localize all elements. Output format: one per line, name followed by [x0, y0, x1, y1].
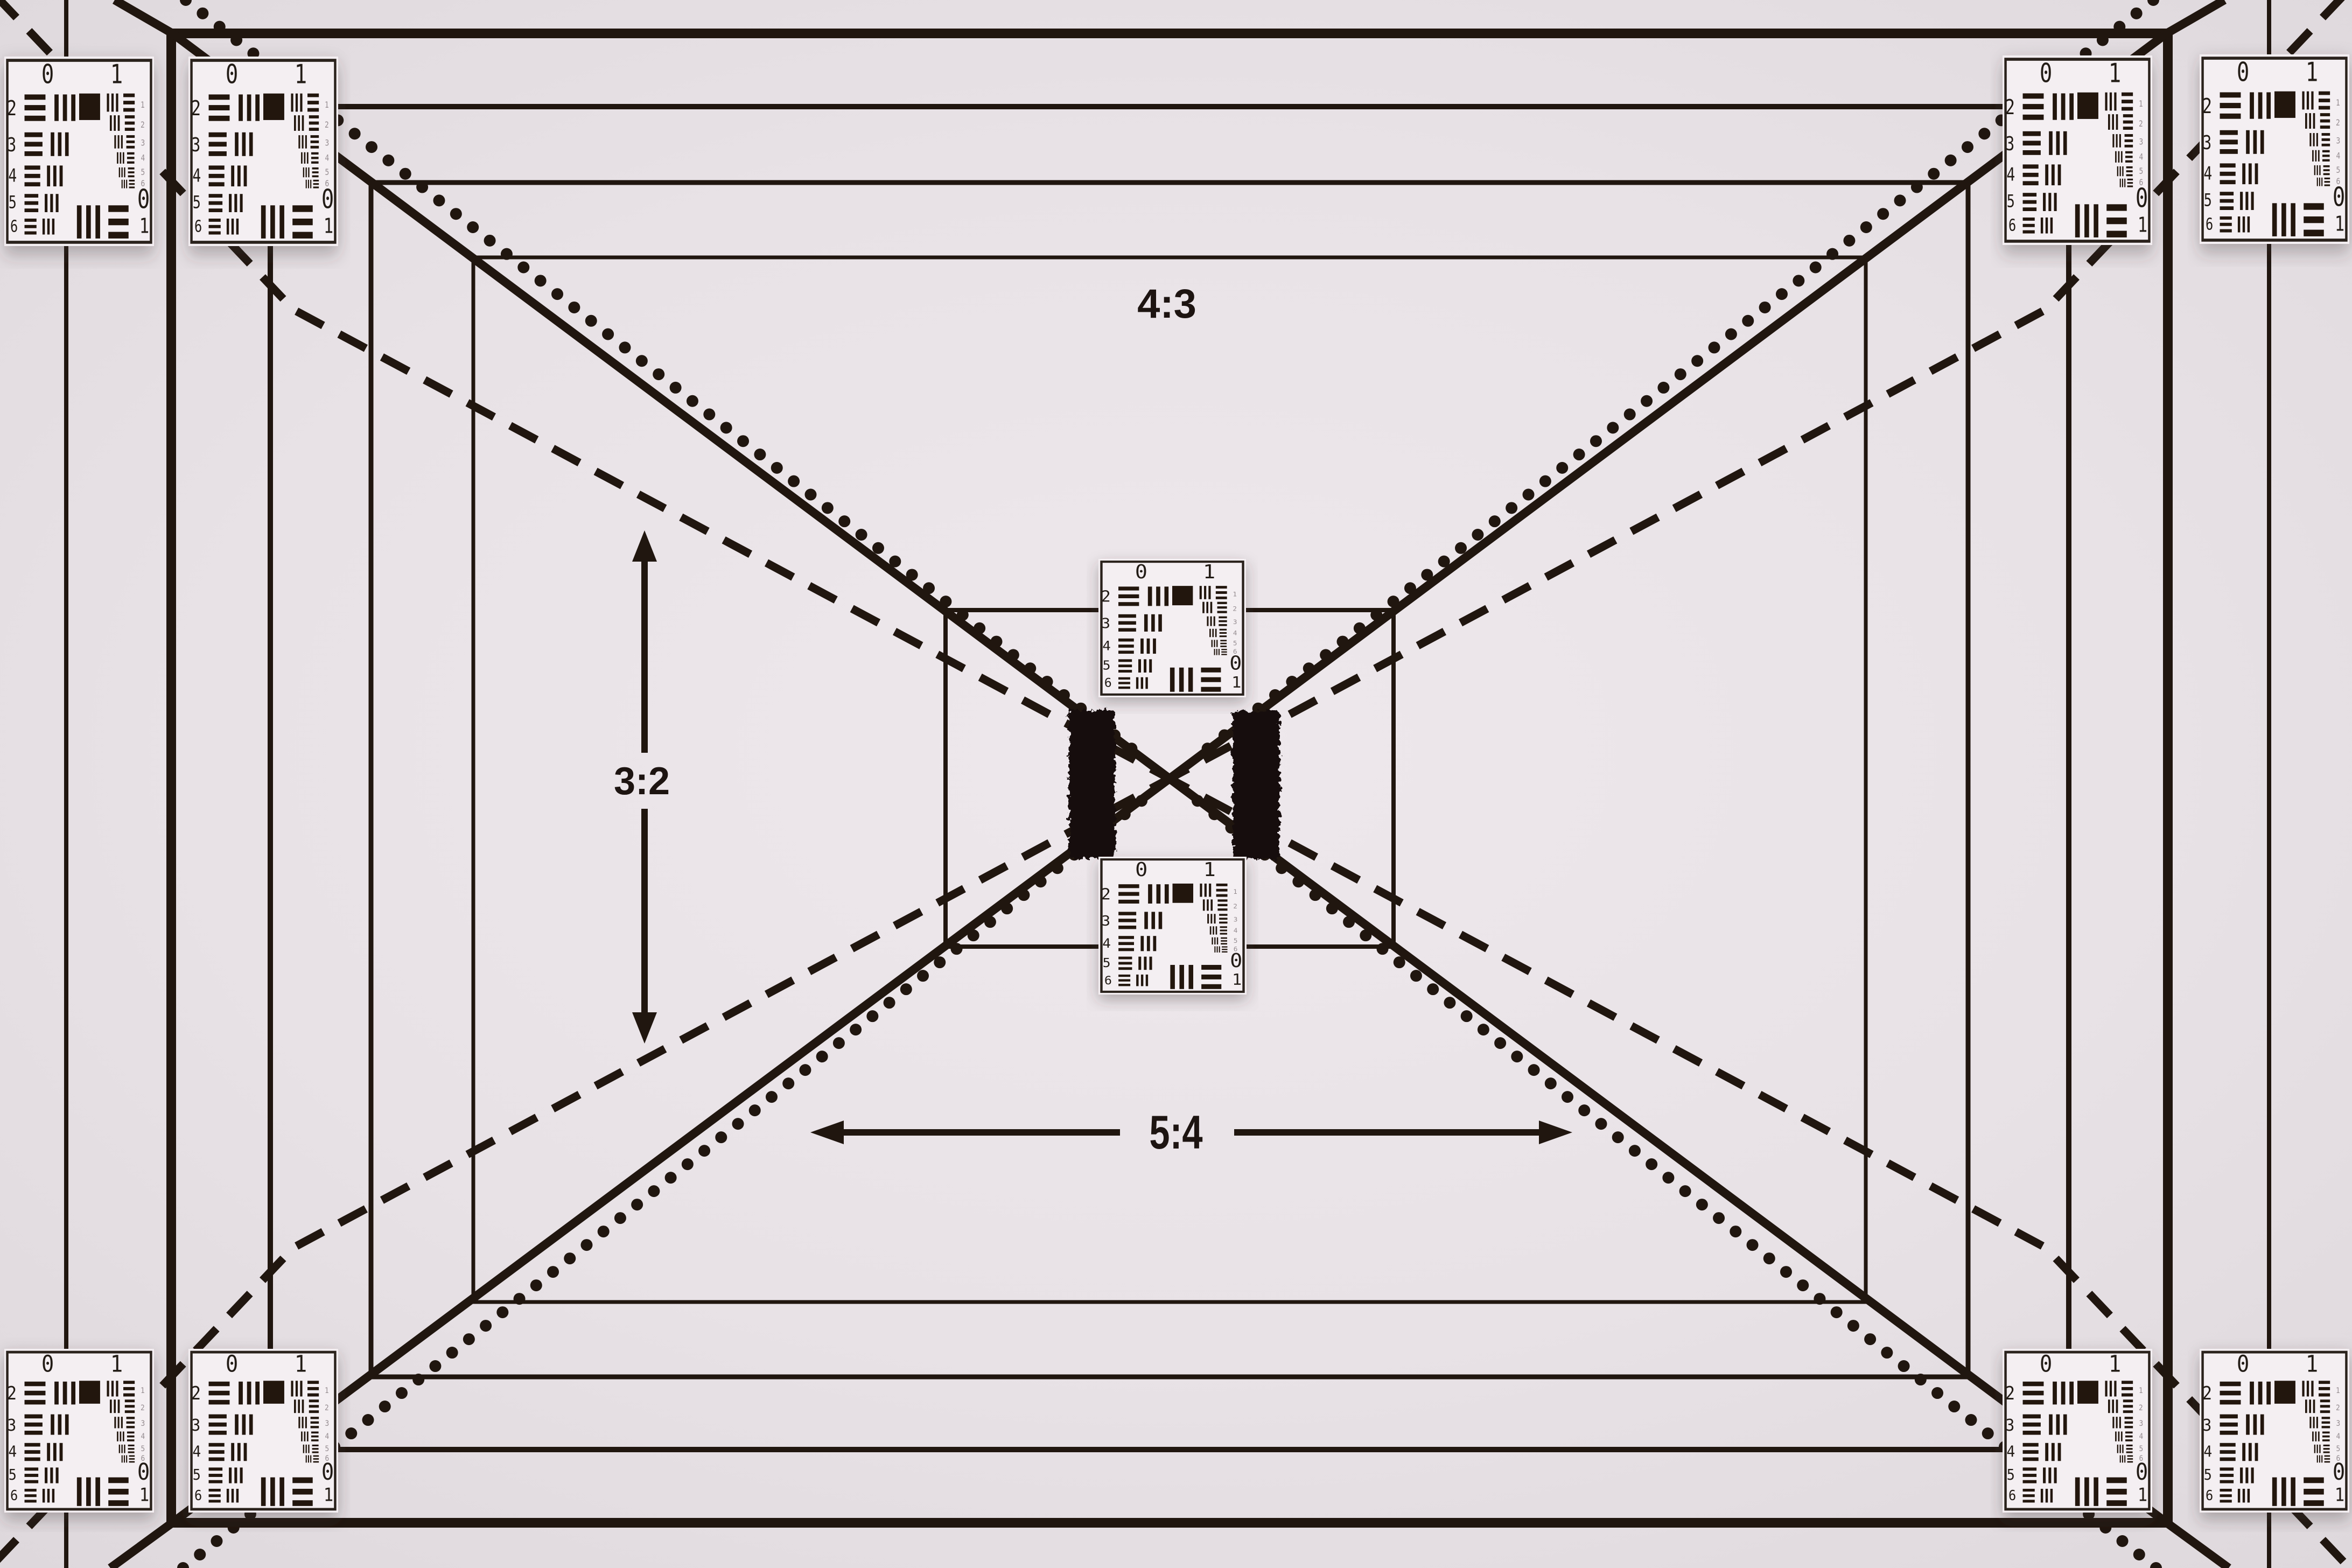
- usaf-instance: [2003, 55, 2152, 245]
- test-chart-scene: 012345612345601 4:33:25:4: [0, 0, 2352, 1568]
- test-chart-photo: 012345612345601 4:33:25:4: [0, 0, 2352, 1568]
- arrowhead-down-icon: [632, 1012, 657, 1044]
- arrowhead-up-icon: [632, 530, 657, 562]
- usaf-target-inner-bottom-right: [2003, 1349, 2152, 1513]
- usaf-instance: [4, 1349, 154, 1513]
- usaf-target-far-bottom-left: [4, 1349, 154, 1513]
- usaf-target-inner-top-left: [188, 57, 338, 246]
- usaf-instance: [188, 57, 338, 246]
- arrowhead-right-icon: [1539, 1121, 1572, 1144]
- arrowhead-left-icon: [810, 1121, 844, 1144]
- usaf-instance: [4, 57, 154, 246]
- velcro-pad-right: [1233, 711, 1280, 859]
- usaf-instance: [2200, 54, 2349, 244]
- usaf-target-far-top-left: [4, 57, 154, 246]
- usaf-target-far-bottom-right: [2200, 1349, 2349, 1513]
- aspect-label-5-4-wrap: 5:4: [1149, 1106, 1202, 1159]
- usaf-target-far-top-right: [2200, 54, 2349, 244]
- aspect-label-4-3: 4:3: [1137, 281, 1196, 327]
- usaf-target-center-top: [1098, 559, 1246, 697]
- usaf-instance: [2200, 1349, 2349, 1513]
- velcro-pad-left: [1069, 710, 1115, 858]
- usaf-target-inner-top-right: [2003, 55, 2152, 245]
- usaf-instance: [2003, 1349, 2152, 1513]
- usaf-target-center-bottom: [1098, 857, 1247, 995]
- usaf-instance: [1098, 857, 1247, 995]
- usaf-instance: [1098, 559, 1246, 697]
- aspect-label-5-4: 5:4: [1149, 1106, 1202, 1159]
- aspect-label-3-2: 3:2: [614, 760, 670, 803]
- usaf-target-inner-bottom-left: [188, 1349, 338, 1513]
- usaf-instance: [188, 1349, 338, 1513]
